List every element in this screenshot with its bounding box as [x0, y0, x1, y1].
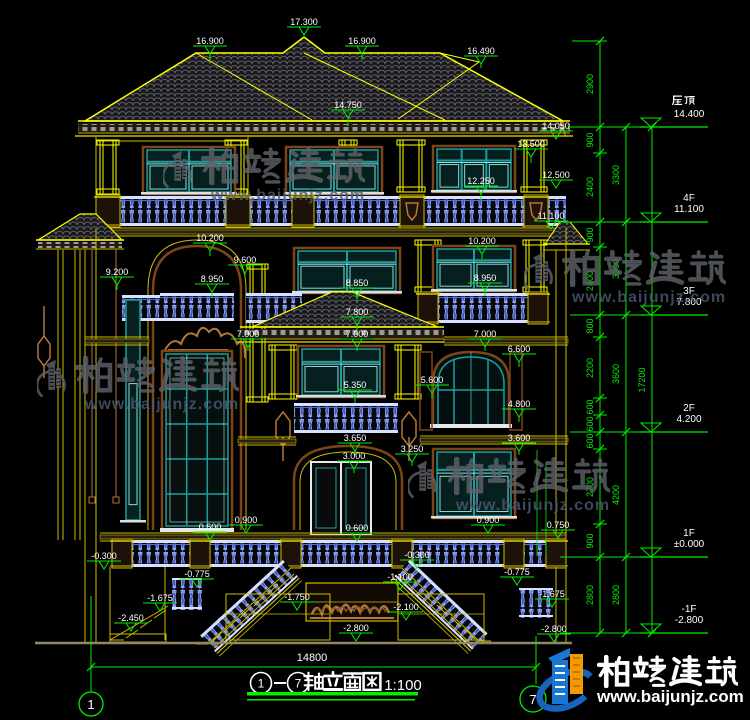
svg-text:2800: 2800: [611, 585, 621, 605]
svg-text:5.350: 5.350: [344, 380, 367, 390]
svg-text:7.000: 7.000: [346, 329, 369, 339]
svg-text:2F: 2F: [683, 403, 695, 414]
svg-text:www.baijunjz.com: www.baijunjz.com: [84, 396, 239, 413]
svg-text:12.250: 12.250: [467, 176, 495, 186]
svg-text:2400: 2400: [585, 177, 595, 197]
svg-text:0.900: 0.900: [235, 515, 258, 525]
svg-text:www.baijunjz.com: www.baijunjz.com: [455, 497, 610, 514]
svg-text:3.250: 3.250: [401, 444, 424, 454]
svg-text:3.600: 3.600: [508, 433, 531, 443]
svg-text:3.000: 3.000: [343, 451, 366, 461]
svg-text:900: 900: [585, 533, 595, 548]
svg-text:600: 600: [585, 416, 595, 431]
svg-text:-1.100: -1.100: [387, 572, 413, 582]
svg-text:-1.750: -1.750: [284, 592, 310, 602]
svg-text:600: 600: [585, 399, 595, 414]
svg-text:-2.800: -2.800: [343, 623, 369, 633]
svg-text:9.200: 9.200: [106, 267, 129, 277]
svg-text:3300: 3300: [611, 165, 621, 185]
svg-text:-2.450: -2.450: [118, 613, 144, 623]
svg-text:600: 600: [585, 433, 595, 448]
svg-text:7.000: 7.000: [474, 329, 497, 339]
svg-text:12.500: 12.500: [542, 170, 570, 180]
svg-text:2900: 2900: [585, 74, 595, 94]
svg-text:-2.800: -2.800: [541, 624, 567, 634]
svg-text:16.900: 16.900: [196, 36, 224, 46]
svg-text:5.600: 5.600: [421, 375, 444, 385]
svg-text:4200: 4200: [611, 485, 621, 505]
svg-text:900: 900: [585, 132, 595, 147]
svg-text:-0.300: -0.300: [91, 551, 117, 561]
svg-text:10.200: 10.200: [196, 233, 224, 243]
svg-text:11.100: 11.100: [538, 211, 565, 221]
svg-text:www.baijunjz.com: www.baijunjz.com: [596, 687, 744, 706]
svg-text:900: 900: [585, 227, 595, 242]
svg-text:13.500: 13.500: [517, 139, 545, 149]
svg-text:1:100: 1:100: [384, 677, 422, 694]
svg-text:16.490: 16.490: [467, 46, 495, 56]
svg-text:4.200: 4.200: [676, 414, 701, 425]
svg-text:6.600: 6.600: [508, 344, 531, 354]
svg-text:3600: 3600: [611, 364, 621, 384]
svg-text:-0.775: -0.775: [504, 567, 530, 577]
svg-text:17200: 17200: [637, 367, 647, 392]
svg-text:1: 1: [258, 677, 265, 691]
svg-text:10.200: 10.200: [468, 236, 496, 246]
svg-text:17.300: 17.300: [290, 17, 318, 27]
svg-text:7.800: 7.800: [346, 307, 369, 317]
svg-text:11.100: 11.100: [674, 204, 704, 215]
svg-text:-1F: -1F: [682, 604, 697, 615]
svg-text:14.750: 14.750: [334, 100, 362, 110]
svg-text:2800: 2800: [585, 585, 595, 605]
svg-text:±0.000: ±0.000: [674, 539, 705, 550]
svg-text:8.950: 8.950: [474, 273, 497, 283]
svg-text:1F: 1F: [683, 528, 695, 539]
svg-text:-2.800: -2.800: [675, 615, 704, 626]
svg-text:0.600: 0.600: [199, 522, 222, 532]
svg-text:1: 1: [87, 697, 94, 712]
svg-text:800: 800: [585, 318, 595, 333]
svg-text:14.050: 14.050: [542, 121, 570, 131]
svg-text:www.baijunjz.com: www.baijunjz.com: [571, 289, 726, 306]
svg-text:8.850: 8.850: [346, 278, 369, 288]
svg-text:4F: 4F: [683, 193, 695, 204]
svg-text:0.600: 0.600: [346, 523, 369, 533]
svg-text:0.900: 0.900: [477, 515, 500, 525]
svg-text:www.baijunjz.com: www.baijunjz.com: [210, 187, 365, 204]
svg-text:-1.675: -1.675: [539, 589, 565, 599]
svg-text:14800: 14800: [297, 652, 328, 664]
svg-text:-0.300: -0.300: [404, 550, 430, 560]
svg-text:3.650: 3.650: [344, 433, 367, 443]
svg-text:16.900: 16.900: [348, 36, 376, 46]
svg-text:2200: 2200: [585, 358, 595, 378]
svg-text:-1.675: -1.675: [147, 593, 173, 603]
svg-text:9.600: 9.600: [234, 255, 257, 265]
svg-text:7.000: 7.000: [237, 329, 260, 339]
svg-text:-2.100: -2.100: [393, 602, 419, 612]
svg-text:-0.775: -0.775: [184, 569, 210, 579]
svg-text:7: 7: [295, 677, 302, 691]
svg-text:14.400: 14.400: [674, 109, 705, 120]
svg-text:7: 7: [529, 692, 536, 707]
svg-text:0.750: 0.750: [547, 520, 570, 530]
svg-text:8.950: 8.950: [201, 274, 224, 284]
svg-text:4.800: 4.800: [508, 399, 531, 409]
